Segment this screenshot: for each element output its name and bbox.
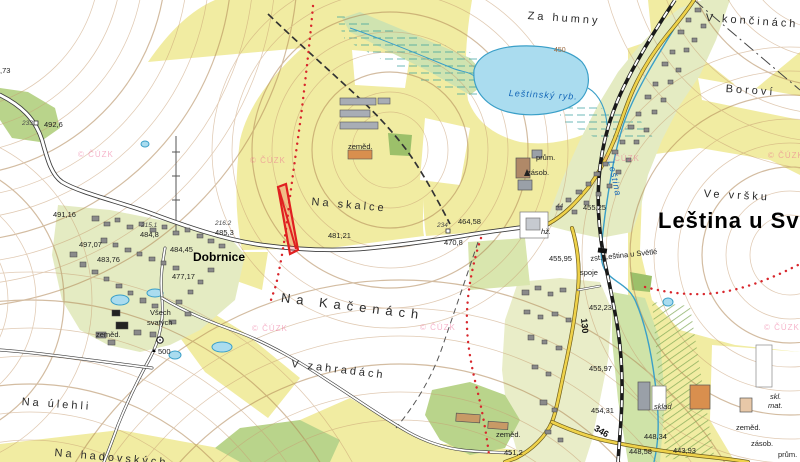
- buildings-dobrnice-part: [96, 332, 106, 338]
- buildings-lestina-south-part: [535, 286, 541, 290]
- buildings-industrial-part: [690, 385, 710, 409]
- buildings-lestina-north-part: [678, 30, 684, 34]
- buildings-lestina-north-part: [584, 201, 589, 205]
- buildings-dobrnice-part: [185, 312, 191, 316]
- buildings-lestina-north-part: [661, 98, 666, 102]
- buildings-lestina-north-part: [594, 172, 600, 176]
- buildings-dobrnice-part: [115, 218, 120, 222]
- buildings-lestina-south-part: [552, 408, 557, 412]
- buildings-dobrnice-part: [113, 243, 118, 247]
- buildings-dobrnice-part: [116, 284, 122, 288]
- buildings-lestina-south-part: [545, 430, 551, 434]
- buildings-dobrnice-part: [208, 268, 214, 272]
- buildings-lestina-south-part: [560, 288, 566, 292]
- forest-areas-part: [388, 133, 412, 156]
- buildings-dobrnice-part: [173, 266, 179, 270]
- buildings-lestina-north-part: [596, 192, 601, 196]
- buildings-dobrnice-part: [137, 252, 142, 256]
- buildings-lestina-north-part: [612, 150, 618, 154]
- buildings-dobrnice-part: [185, 228, 190, 232]
- buildings-dobrnice-part: [152, 304, 158, 308]
- buildings-lestina-south-part: [528, 335, 534, 340]
- buildings-industrial-part: [638, 382, 650, 410]
- buildings-dobrnice-part: [108, 340, 115, 345]
- buildings-dobrnice-part: [139, 222, 144, 226]
- buildings-dobrnice-part: [162, 225, 167, 229]
- buildings-lestina-north-part: [616, 170, 621, 174]
- buildings-dobrnice-part: [116, 322, 128, 329]
- buildings-lestina-north-part: [701, 24, 706, 28]
- buildings-industrial-part: [740, 398, 752, 412]
- pond-dobrnice-1: [111, 295, 129, 305]
- survey-squares-part: [446, 229, 450, 233]
- buildings-dobrnice-part: [197, 234, 203, 238]
- buildings-farm-north-part: [340, 110, 370, 117]
- buildings-lestina-south-part: [548, 292, 553, 296]
- buildings-lestina-north-part: [628, 125, 634, 129]
- buildings-lestina-north-part: [603, 162, 608, 166]
- pond-lestinsky: [474, 46, 589, 115]
- buildings-dobrnice-part: [161, 261, 166, 265]
- pond-industry: [141, 141, 149, 147]
- buildings-lestina-north-part: [620, 140, 625, 144]
- buildings-lestina-north-part: [576, 190, 582, 194]
- buildings-lestina-north-part: [556, 206, 562, 210]
- buildings-farm-north-part: [378, 98, 390, 104]
- buildings-dobrnice-part: [125, 248, 131, 252]
- buildings-dobrnice-part: [176, 300, 182, 304]
- buildings-industrial-part: [532, 150, 542, 158]
- buildings-dobrnice-part: [150, 332, 156, 337]
- buildings-dobrnice-part: [112, 310, 120, 316]
- buildings-lestina-north-part: [586, 182, 591, 186]
- buildings-lestina-north-part: [684, 48, 689, 52]
- buildings-lestina-south-part: [532, 365, 538, 369]
- buildings-lestina-south-part: [522, 290, 529, 295]
- buildings-dobrnice-part: [101, 238, 107, 243]
- contour-lines-part: [0, 212, 8, 388]
- buildings-lestina-north-part: [653, 82, 658, 86]
- buildings-dobrnice-part: [104, 277, 109, 281]
- pond-lane: [212, 342, 232, 352]
- church-symbol: [157, 337, 163, 343]
- buildings-dobrnice-part: [219, 244, 225, 248]
- buildings-dobrnice-part: [128, 291, 133, 295]
- buildings-dobrnice-part: [70, 252, 77, 257]
- village-areas-part: [502, 278, 612, 462]
- buildings-industrial-part: [488, 421, 508, 429]
- church-symbol-part: [159, 339, 161, 341]
- buildings-lestina-north-part: [668, 80, 673, 84]
- buildings-lestina-north-part: [634, 140, 639, 144]
- buildings-lestina-north-part: [566, 198, 571, 202]
- buildings-lestina-north-part: [607, 184, 612, 188]
- buildings-lestina-south-part: [540, 400, 547, 405]
- map-canvas: [0, 0, 800, 462]
- buildings-lestina-north-part: [695, 8, 701, 12]
- roads-part: [0, 350, 152, 368]
- buildings-lestina-north-part: [652, 110, 657, 114]
- buildings-dobrnice-part: [198, 280, 203, 284]
- buildings-industrial-part: [652, 386, 666, 410]
- buildings-lestina-north-part: [644, 128, 649, 132]
- buildings-industrial-part: [518, 180, 532, 190]
- buildings-lestina-north-part: [662, 62, 668, 66]
- buildings-lestina-north-part: [692, 38, 697, 42]
- pond-east: [663, 298, 673, 306]
- buildings-dobrnice-part: [140, 298, 146, 303]
- buildings-dobrnice-part: [127, 225, 133, 229]
- map-viewport: Leština u SvětléDobrniceZa humnyV končin…: [0, 0, 800, 462]
- buildings-dobrnice-part: [104, 222, 110, 226]
- pond-church: [169, 351, 181, 359]
- buildings-dobrnice-part: [80, 262, 86, 267]
- buildings-dobrnice-part: [92, 270, 98, 274]
- buildings-lestina-south-part: [538, 315, 543, 319]
- buildings-lestina-south-part: [552, 312, 558, 316]
- buildings-lestina-south-part: [556, 346, 562, 350]
- buildings-dobrnice-part: [150, 228, 156, 232]
- buildings-lestina-south-part: [524, 310, 530, 314]
- buildings-lestina-south-part: [558, 438, 563, 442]
- buildings-farm-north-part: [340, 98, 376, 105]
- buildings-lestina-north-part: [670, 50, 675, 54]
- buildings-lestina-north-part: [572, 210, 577, 214]
- contour-lines-part: [0, 0, 166, 176]
- buildings-lestina-south-part: [546, 372, 551, 376]
- buildings-lestina-north-part: [636, 112, 641, 116]
- buildings-farm-north-part: [348, 150, 372, 159]
- buildings-industrial-part: [756, 345, 772, 387]
- buildings-dobrnice-part: [134, 330, 141, 335]
- buildings-lestina-north-part: [626, 158, 631, 162]
- buildings-lestina-south-part: [542, 340, 547, 344]
- buildings-lestina-north-part: [645, 95, 651, 99]
- buildings-lestina-south-part: [566, 318, 571, 322]
- buildings-lestina-north-part: [686, 18, 691, 22]
- buildings-dobrnice-part: [149, 257, 155, 261]
- buildings-industrial-part: [456, 413, 480, 423]
- buildings-dobrnice-part: [173, 231, 179, 235]
- buildings-lestina-north-part: [676, 68, 681, 72]
- buildings-dobrnice-part: [208, 239, 214, 243]
- buildings-dobrnice-part: [170, 320, 176, 324]
- buildings-dobrnice-part: [92, 216, 99, 221]
- buildings-farm-north-part: [340, 122, 378, 129]
- buildings-dobrnice-part: [188, 290, 193, 294]
- buildings-industrial-part: [526, 218, 540, 230]
- survey-squares-part: [34, 121, 38, 125]
